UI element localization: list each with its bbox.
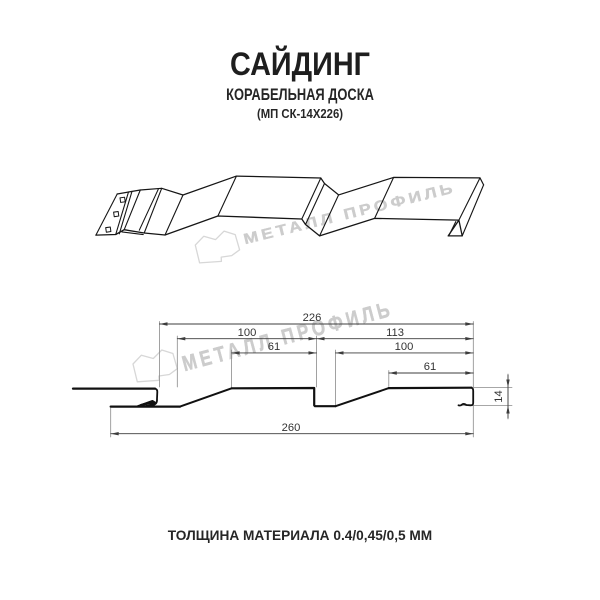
svg-text:100: 100 xyxy=(395,341,414,353)
svg-text:61: 61 xyxy=(424,361,436,373)
svg-text:100: 100 xyxy=(238,327,257,339)
svg-text:61: 61 xyxy=(268,341,280,353)
svg-text:14: 14 xyxy=(493,390,505,402)
svg-text:МЕТАЛЛ ПРОФИЛЬ: МЕТАЛЛ ПРОФИЛЬ xyxy=(180,297,396,377)
svg-text:226: 226 xyxy=(303,312,322,324)
svg-text:260: 260 xyxy=(282,422,301,434)
svg-text:113: 113 xyxy=(386,327,404,339)
svg-text:МЕТАЛЛ ПРОФИЛЬ: МЕТАЛЛ ПРОФИЛЬ xyxy=(242,180,457,248)
